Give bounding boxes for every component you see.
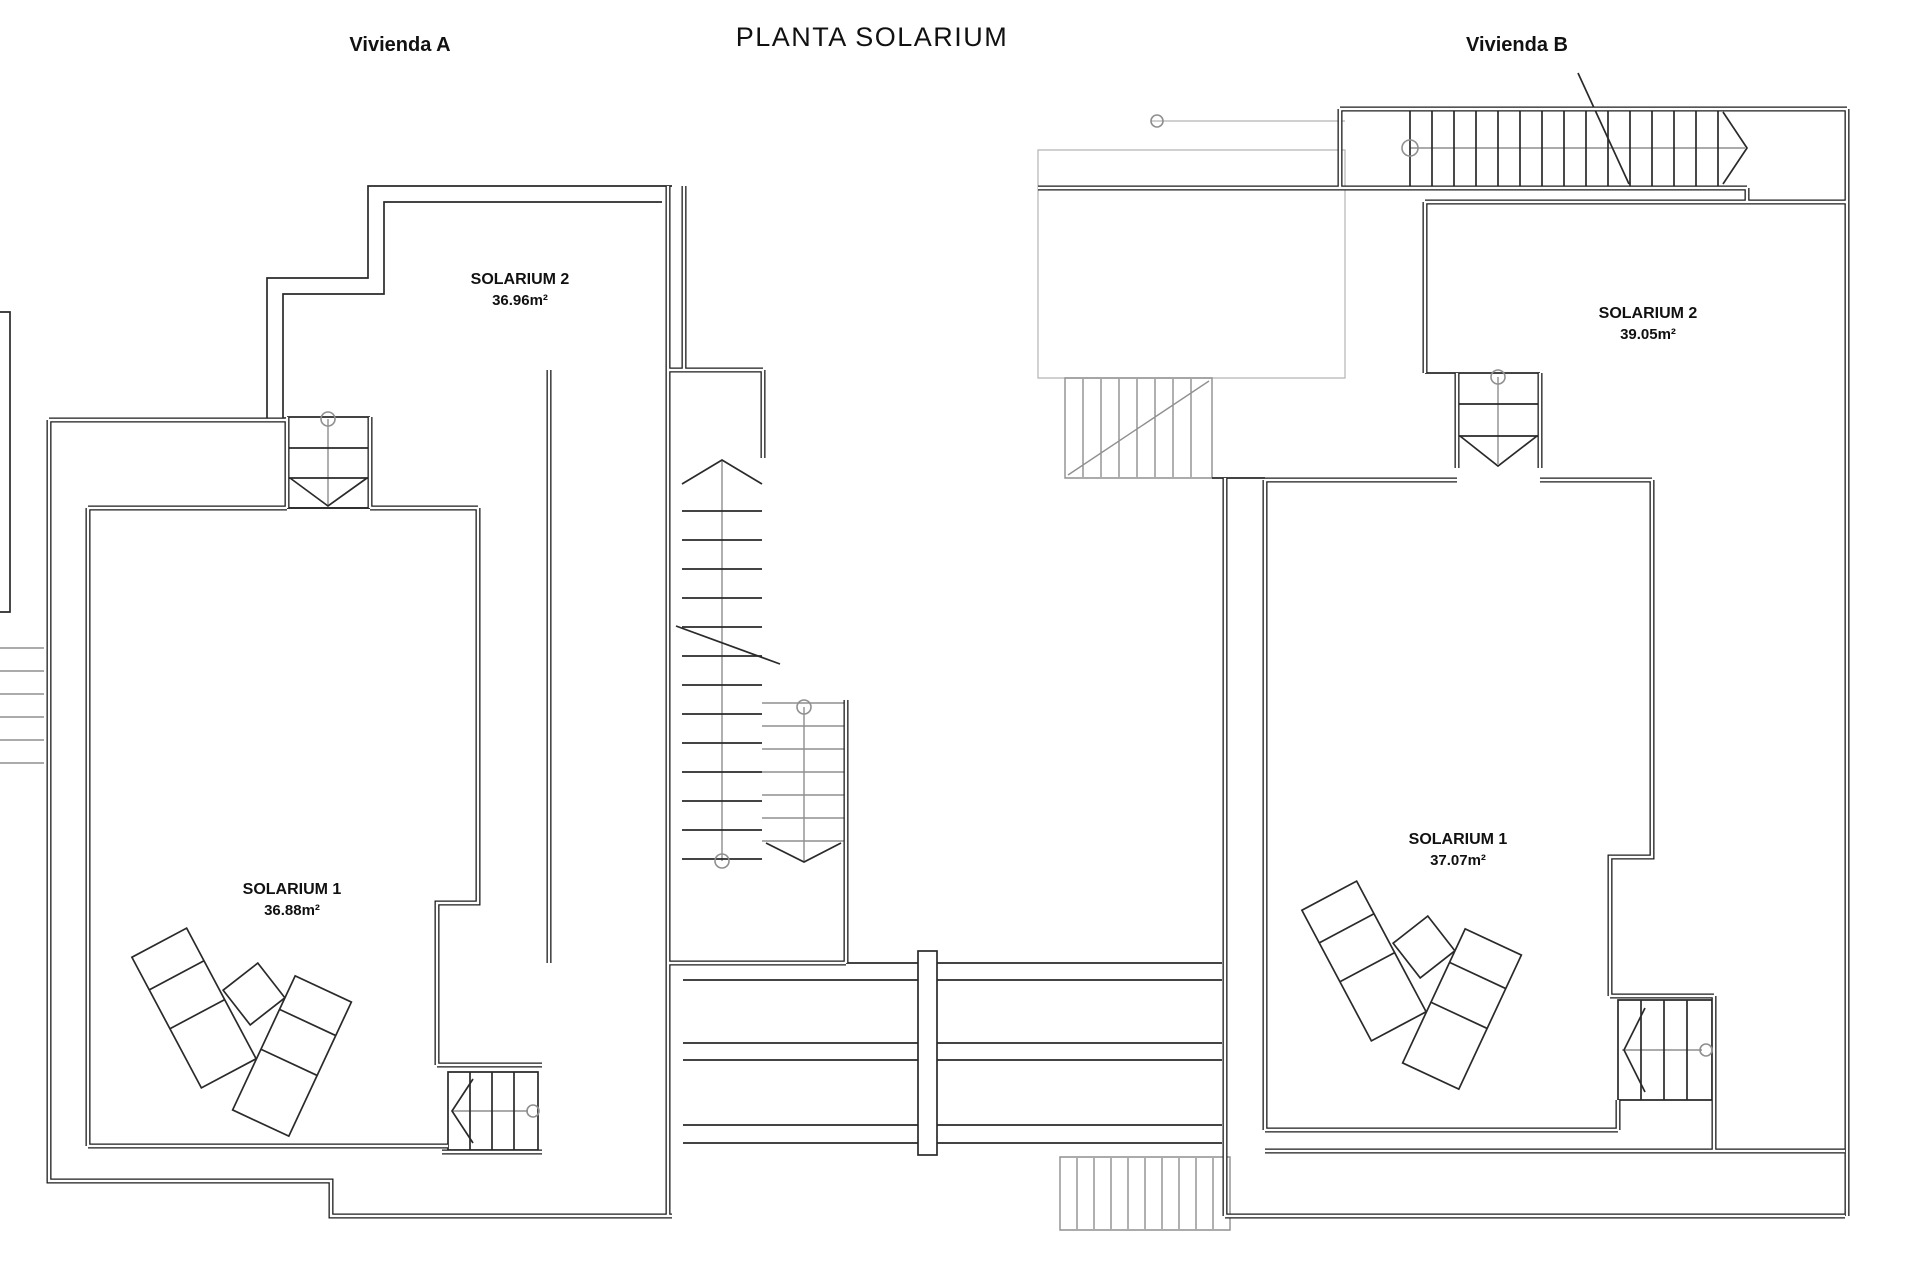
detail-lines: [0, 73, 1747, 1155]
page-title: PLANTA SOLARIUM: [736, 22, 1009, 52]
bridge-post: [918, 951, 937, 1155]
unit-a-loungers: [132, 928, 351, 1136]
lower-level-outline: [1038, 121, 1345, 378]
unit-a-room-right: [437, 508, 478, 1065]
annotations: Vivienda A PLANTA SOLARIUM Vivienda B SO…: [243, 22, 1698, 919]
unit-a-solarium1-label: SOLARIUM 1: [243, 881, 342, 898]
unit-a-title: Vivienda A: [349, 34, 450, 56]
floor-plan: Vivienda A PLANTA SOLARIUM Vivienda B SO…: [0, 0, 1920, 1280]
unit-b-wall-connector: [287, 373, 1457, 508]
unit-b-solarium1-label: SOLARIUM 1: [1409, 831, 1508, 848]
central-stair-break-line: [676, 626, 780, 664]
unit-a-solarium1-area: 36.88m²: [264, 902, 320, 919]
unit-b-hatched-stair: [1065, 378, 1212, 478]
unit-b-bottom-hatched-stair: [1060, 1157, 1230, 1230]
unit-b-solarium1-area: 37.07m²: [1430, 852, 1486, 869]
neighbour-wall-fragment: [0, 312, 10, 612]
unit-a-solarium2-label: SOLARIUM 2: [471, 271, 570, 288]
unit-a-solarium2-area: 36.96m²: [492, 292, 548, 309]
unit-b-title: Vivienda B: [1466, 34, 1568, 56]
unit-b-solarium2-area: 39.05m²: [1620, 326, 1676, 343]
unit-b-lower-stair-walls: [1610, 996, 1714, 1151]
floor-plan-drawing: Vivienda A PLANTA SOLARIUM Vivienda B SO…: [0, 0, 1920, 1280]
unit-b-solarium2-label: SOLARIUM 2: [1599, 305, 1698, 322]
bridge-railings: [683, 963, 1222, 1143]
unit-a-outer-boundary: [49, 420, 672, 1216]
central-stair-enclosure: [668, 370, 846, 963]
unit-b-loungers: [1302, 881, 1521, 1089]
unit-a-sol2-border-inner: [283, 202, 662, 420]
left-edge-stair-treads: [0, 648, 44, 763]
unit-a-sol2-border-outer: [267, 186, 672, 420]
unit-b-room-right: [1610, 480, 1652, 996]
